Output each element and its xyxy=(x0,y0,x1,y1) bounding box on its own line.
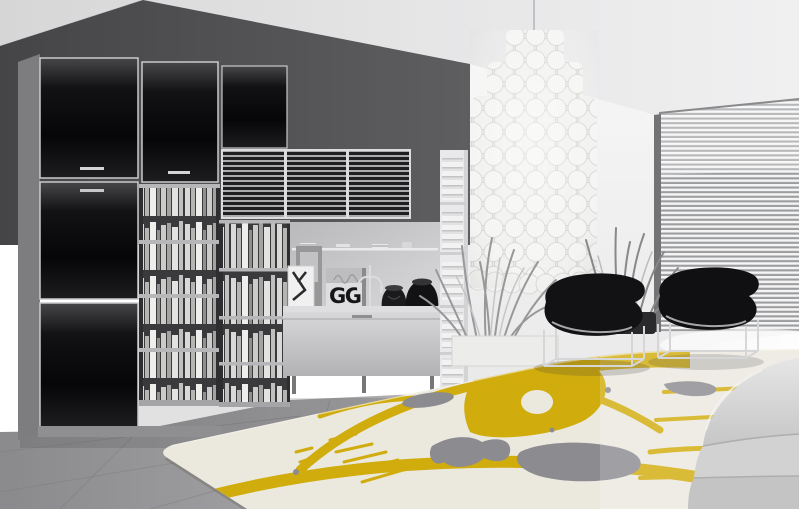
sideboard-leg xyxy=(292,376,296,394)
unit-plinth xyxy=(38,426,222,437)
sideboard-leg xyxy=(362,376,366,393)
planter-box xyxy=(452,336,558,366)
living-room-photo: GG xyxy=(0,0,799,509)
door-handle xyxy=(168,171,190,174)
photo-canvas: GG xyxy=(0,0,799,509)
louver-cabinet xyxy=(222,150,410,218)
sideboard xyxy=(283,306,442,394)
display-alcove: GG xyxy=(288,222,440,311)
drawer-handle xyxy=(352,315,372,318)
door-handle xyxy=(80,167,104,170)
door-handle xyxy=(80,189,104,192)
wall-unit-side-panel xyxy=(18,54,40,440)
gg-cover-text: GG xyxy=(329,284,361,308)
chandelier xyxy=(468,0,604,294)
